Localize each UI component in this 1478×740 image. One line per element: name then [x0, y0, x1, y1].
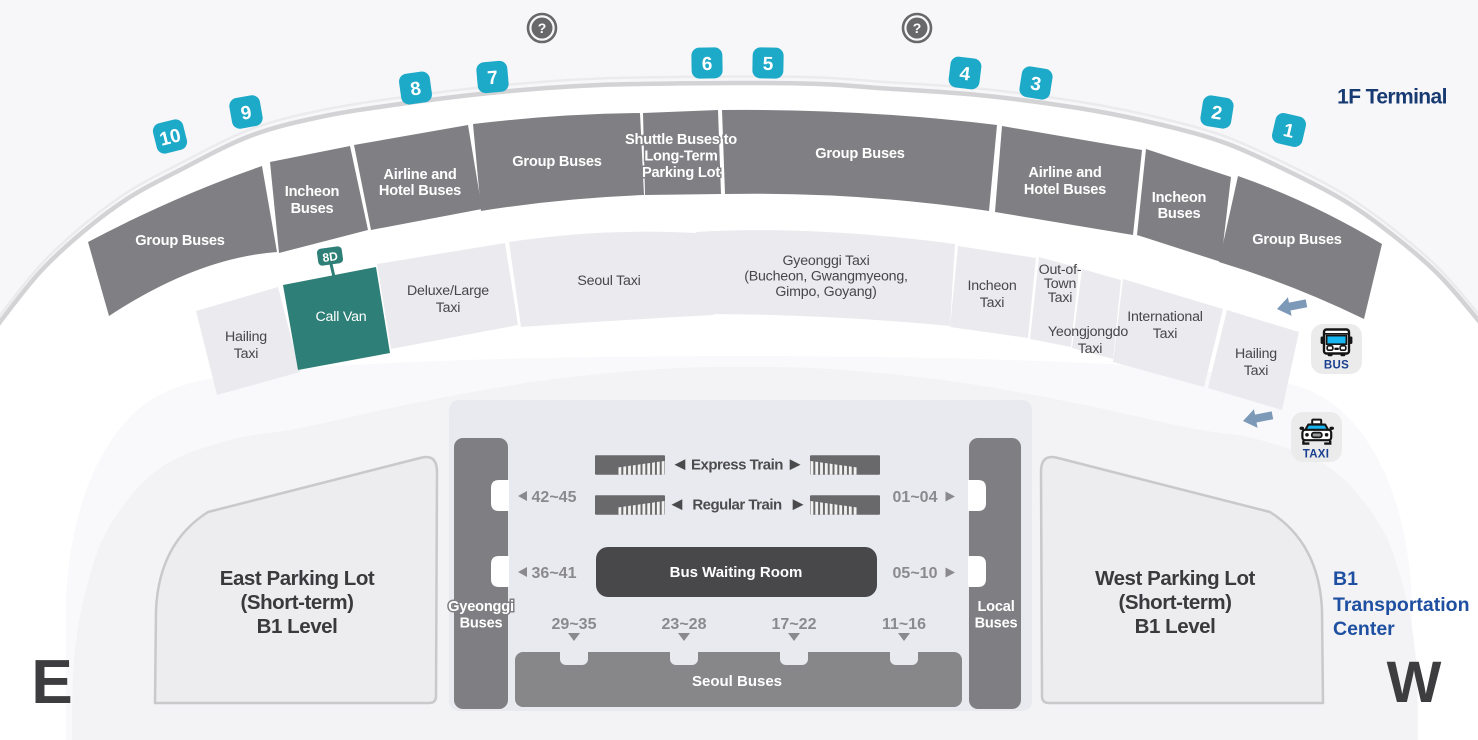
svg-text:?: ?: [913, 20, 922, 36]
svg-text:LocalBuses: LocalBuses: [975, 599, 1018, 632]
svg-text:Regular Train: Regular Train: [692, 497, 782, 514]
svg-text:TAXI: TAXI: [1303, 449, 1330, 461]
svg-text:Express Train: Express Train: [691, 457, 783, 474]
svg-text:IncheonBuses: IncheonBuses: [285, 184, 340, 217]
svg-text:Bus Waiting Room: Bus Waiting Room: [670, 564, 803, 581]
svg-text:W: W: [1387, 650, 1442, 715]
svg-text:8D: 8D: [322, 249, 339, 265]
svg-text:BUS: BUS: [1324, 360, 1349, 372]
svg-text:6: 6: [702, 54, 713, 75]
svg-text:Group Buses: Group Buses: [135, 233, 225, 249]
svg-text:Seoul Buses: Seoul Buses: [692, 673, 782, 690]
svg-text:29~35: 29~35: [552, 616, 597, 633]
svg-text:E: E: [31, 648, 72, 717]
svg-text:05~10: 05~10: [893, 565, 938, 582]
svg-text:01~04: 01~04: [893, 489, 938, 506]
svg-text:7: 7: [486, 68, 498, 90]
svg-text:23~28: 23~28: [662, 616, 707, 633]
svg-text:42~45: 42~45: [532, 489, 577, 506]
svg-text:Call Van: Call Van: [316, 309, 367, 325]
svg-text:Group Buses: Group Buses: [1252, 232, 1342, 248]
svg-text:?: ?: [538, 20, 547, 36]
svg-text:IncheonBuses: IncheonBuses: [1152, 190, 1207, 222]
svg-text:36~41: 36~41: [532, 565, 577, 582]
svg-text:Group Buses: Group Buses: [815, 146, 905, 162]
svg-text:Seoul Taxi: Seoul Taxi: [577, 273, 640, 289]
svg-text:5: 5: [763, 54, 774, 75]
svg-text:Group Buses: Group Buses: [512, 154, 602, 170]
svg-text:17~22: 17~22: [772, 616, 817, 633]
svg-text:1F Terminal: 1F Terminal: [1337, 86, 1447, 109]
svg-text:Airline andHotel Buses: Airline andHotel Buses: [379, 167, 461, 199]
svg-text:11~16: 11~16: [882, 616, 926, 633]
svg-text:Airline andHotel Buses: Airline andHotel Buses: [1024, 165, 1106, 198]
